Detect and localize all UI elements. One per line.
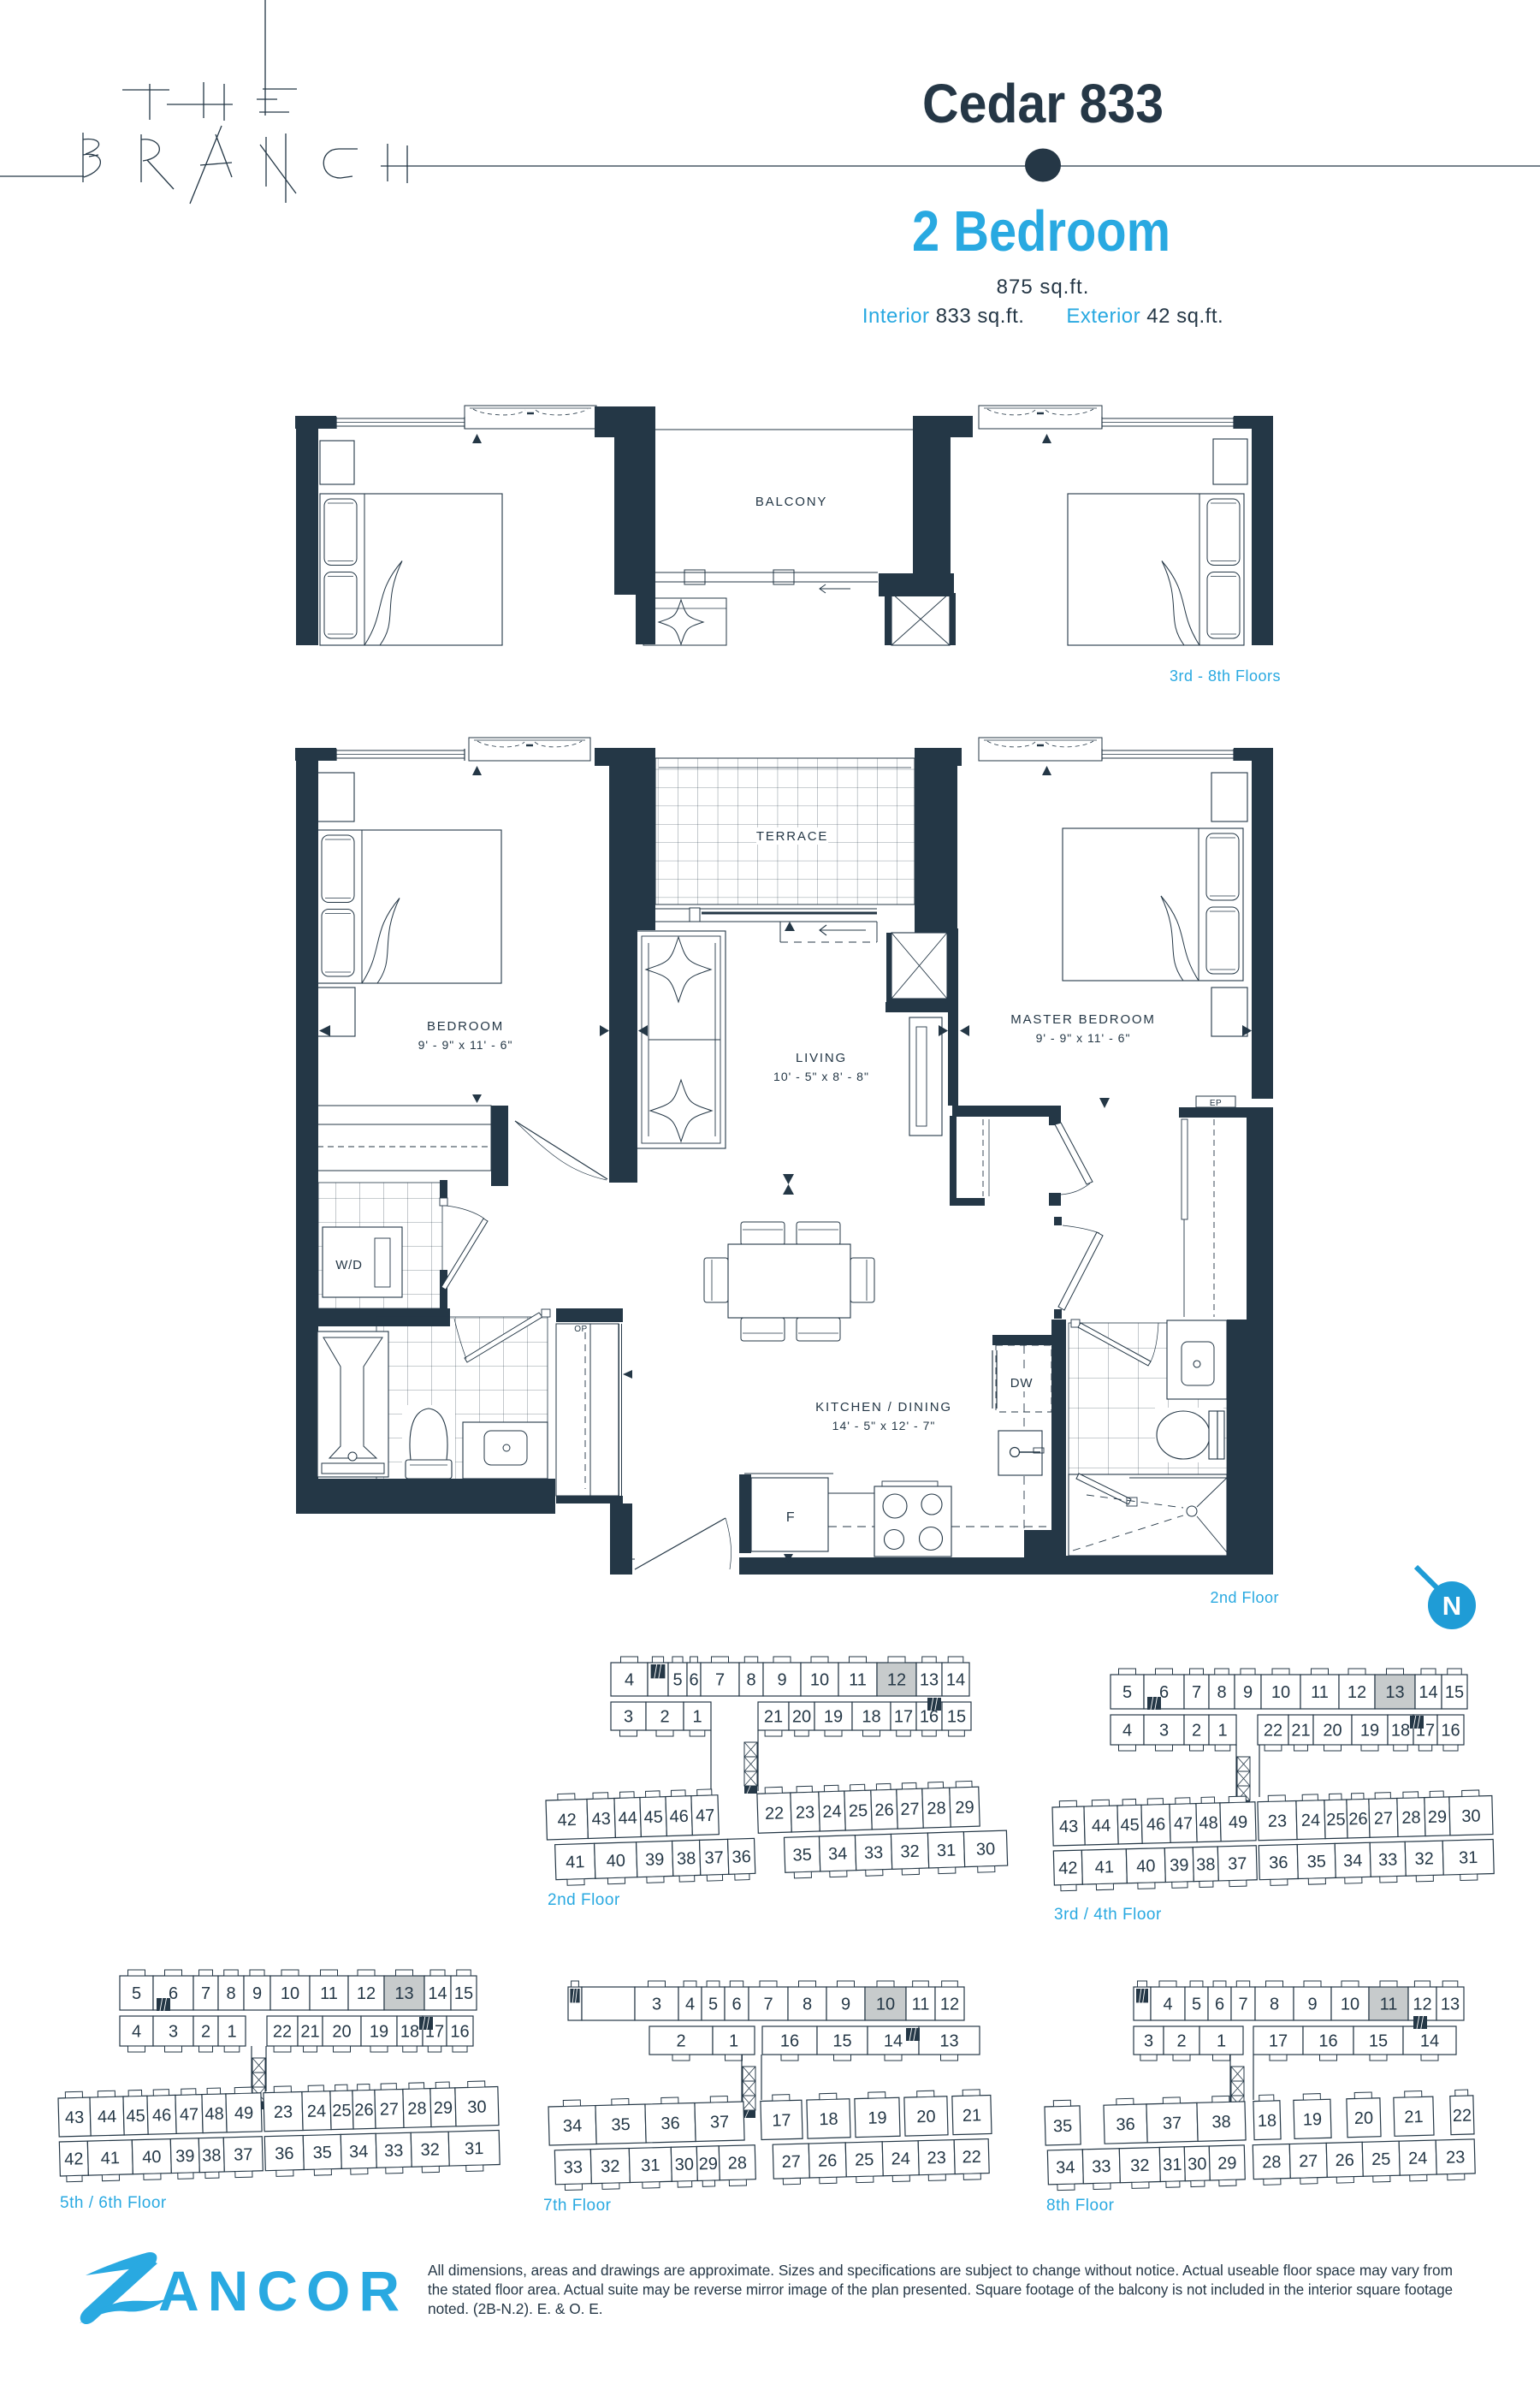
- svg-text:12: 12: [940, 1996, 959, 2014]
- svg-text:38: 38: [1196, 1855, 1216, 1875]
- svg-text:28: 28: [727, 2154, 747, 2174]
- svg-text:46: 46: [1146, 1815, 1166, 1835]
- svg-text:5: 5: [132, 1984, 141, 2003]
- svg-text:35: 35: [312, 2144, 332, 2163]
- svg-text:26: 26: [874, 1800, 894, 1820]
- svg-text:2: 2: [1176, 2032, 1186, 2051]
- svg-text:F: F: [786, 1510, 795, 1525]
- svg-text:41: 41: [566, 1853, 585, 1872]
- svg-text:23: 23: [1268, 1812, 1288, 1831]
- svg-text:21: 21: [300, 2023, 319, 2042]
- svg-text:2: 2: [201, 2023, 210, 2042]
- svg-text:3: 3: [1144, 2032, 1153, 2051]
- svg-text:OP: OP: [574, 1325, 587, 1334]
- svg-text:7: 7: [715, 1671, 725, 1690]
- svg-text:22: 22: [1453, 2106, 1472, 2126]
- svg-text:23: 23: [274, 2102, 293, 2122]
- svg-text:32: 32: [900, 1842, 920, 1862]
- svg-text:the stated floor area. Actual: the stated floor area. Actual suite may …: [428, 2281, 1453, 2298]
- svg-text:44: 44: [98, 2108, 117, 2127]
- svg-text:29: 29: [1217, 2154, 1237, 2174]
- svg-text:25: 25: [332, 2102, 352, 2121]
- svg-text:14: 14: [428, 1984, 447, 2003]
- svg-text:9: 9: [1307, 1996, 1317, 2014]
- svg-text:2nd Floor: 2nd Floor: [1210, 1589, 1279, 1606]
- svg-text:16: 16: [780, 2032, 799, 2051]
- svg-text:9: 9: [777, 1671, 786, 1690]
- svg-text:22: 22: [765, 1804, 785, 1824]
- svg-text:3rd / 4th Floor: 3rd / 4th Floor: [1054, 1906, 1162, 1924]
- svg-text:34: 34: [563, 2116, 583, 2136]
- svg-text:44: 44: [1092, 1817, 1111, 1836]
- svg-text:22: 22: [962, 2148, 981, 2168]
- svg-text:4: 4: [1122, 1722, 1132, 1741]
- svg-text:31: 31: [641, 2156, 660, 2176]
- svg-text:Interior 833 sq.ft. Exterior: Interior 833 sq.ft. Exterior 42 sq.ft.: [862, 305, 1223, 328]
- svg-text:33: 33: [1092, 2157, 1111, 2177]
- svg-text:45: 45: [126, 2107, 145, 2126]
- svg-text:23: 23: [796, 1803, 815, 1823]
- svg-text:24: 24: [822, 1802, 842, 1822]
- svg-text:23: 23: [927, 2149, 946, 2168]
- svg-text:21: 21: [764, 1708, 783, 1727]
- svg-text:42: 42: [557, 1811, 577, 1830]
- svg-text:2 Bedroom: 2 Bedroom: [912, 199, 1170, 264]
- svg-text:3: 3: [1159, 1722, 1169, 1741]
- svg-text:TERRACE: TERRACE: [756, 829, 828, 844]
- svg-text:11: 11: [1311, 1683, 1329, 1702]
- svg-text:23: 23: [1446, 2148, 1466, 2168]
- svg-text:46: 46: [669, 1807, 689, 1827]
- svg-text:9: 9: [841, 1996, 850, 2014]
- svg-text:30: 30: [674, 2156, 694, 2175]
- svg-text:4: 4: [625, 1671, 634, 1690]
- svg-text:35: 35: [792, 1846, 812, 1865]
- svg-text:40: 40: [1136, 1857, 1156, 1877]
- svg-text:11: 11: [912, 1996, 930, 2014]
- svg-text:12: 12: [1347, 1683, 1366, 1702]
- svg-text:37: 37: [1228, 1854, 1247, 1874]
- svg-text:2: 2: [660, 1708, 669, 1727]
- svg-text:13: 13: [939, 2032, 958, 2051]
- svg-text:42: 42: [1058, 1859, 1078, 1878]
- svg-text:6: 6: [1215, 1996, 1224, 2014]
- svg-text:2: 2: [676, 2032, 685, 2051]
- svg-text:13: 13: [394, 1984, 413, 2003]
- svg-text:29: 29: [698, 2155, 718, 2174]
- svg-text:7th Floor: 7th Floor: [543, 2197, 612, 2215]
- svg-text:15: 15: [832, 2032, 851, 2051]
- svg-text:21: 21: [962, 2106, 982, 2126]
- svg-text:10: 10: [1341, 1996, 1359, 2014]
- svg-text:24: 24: [1301, 1811, 1321, 1830]
- svg-text:BEDROOM: BEDROOM: [427, 1019, 504, 1034]
- svg-text:18: 18: [400, 2023, 419, 2042]
- svg-text:7: 7: [201, 1984, 210, 2003]
- svg-text:19: 19: [1360, 1722, 1379, 1741]
- svg-text:47: 47: [180, 2105, 199, 2125]
- svg-text:10: 10: [1271, 1683, 1290, 1702]
- svg-text:25: 25: [849, 1801, 868, 1821]
- svg-text:48: 48: [204, 2104, 224, 2124]
- svg-text:39: 39: [645, 1850, 665, 1870]
- svg-text:22: 22: [273, 2023, 292, 2042]
- svg-text:36: 36: [1116, 2115, 1135, 2135]
- svg-text:32: 32: [420, 2140, 440, 2160]
- svg-text:1: 1: [692, 1708, 702, 1727]
- svg-text:3: 3: [624, 1708, 633, 1727]
- svg-text:875 sq.ft.: 875 sq.ft.: [997, 276, 1090, 299]
- svg-text:30: 30: [467, 2097, 487, 2117]
- svg-text:38: 38: [1211, 2113, 1231, 2132]
- svg-text:29: 29: [1428, 1807, 1448, 1827]
- svg-text:ANCOR: ANCOR: [158, 2259, 408, 2322]
- svg-text:34: 34: [1343, 1852, 1363, 1871]
- svg-text:17: 17: [1269, 2032, 1288, 2051]
- svg-text:31: 31: [1459, 1848, 1478, 1868]
- svg-text:2: 2: [1192, 1722, 1201, 1741]
- svg-text:37: 37: [704, 1848, 724, 1868]
- svg-text:N: N: [1442, 1591, 1461, 1621]
- svg-text:10: 10: [876, 1996, 895, 2014]
- svg-text:14' - 5" x 12' - 7": 14' - 5" x 12' - 7": [832, 1419, 936, 1432]
- svg-text:37: 37: [710, 2113, 730, 2132]
- svg-text:36: 36: [660, 2114, 680, 2133]
- svg-text:8th Floor: 8th Floor: [1046, 2197, 1115, 2215]
- svg-text:21: 21: [1404, 2108, 1424, 2127]
- svg-text:18: 18: [819, 2110, 838, 2130]
- svg-text:7: 7: [1192, 1683, 1201, 1702]
- svg-text:12: 12: [357, 1984, 376, 2003]
- svg-text:14: 14: [884, 2032, 903, 2051]
- svg-text:7: 7: [763, 1996, 773, 2014]
- svg-text:27: 27: [1299, 2152, 1318, 2172]
- svg-text:26: 26: [818, 2151, 838, 2171]
- svg-text:1: 1: [227, 2023, 236, 2042]
- svg-text:8: 8: [803, 1996, 812, 2014]
- svg-text:34: 34: [1056, 2158, 1075, 2178]
- svg-text:9: 9: [252, 1984, 262, 2003]
- svg-text:30: 30: [1188, 2155, 1207, 2174]
- svg-text:33: 33: [384, 2141, 404, 2161]
- svg-text:17: 17: [772, 2111, 791, 2131]
- svg-text:15: 15: [1369, 2032, 1388, 2051]
- svg-text:45: 45: [643, 1808, 663, 1828]
- svg-text:19: 19: [1303, 2110, 1323, 2130]
- svg-text:41: 41: [100, 2149, 120, 2168]
- svg-text:All dimensions, areas and draw: All dimensions, areas and drawings are a…: [428, 2262, 1453, 2279]
- svg-text:11: 11: [320, 1984, 338, 2003]
- svg-text:31: 31: [937, 1841, 957, 1860]
- svg-text:40: 40: [606, 1852, 625, 1871]
- svg-text:10: 10: [810, 1671, 829, 1690]
- svg-text:12: 12: [887, 1671, 906, 1690]
- svg-text:5: 5: [1192, 1996, 1201, 2014]
- svg-text:MASTER BEDROOM: MASTER BEDROOM: [1010, 1012, 1155, 1027]
- svg-text:18: 18: [1258, 2111, 1277, 2131]
- svg-text:15: 15: [1445, 1683, 1464, 1702]
- svg-text:19: 19: [824, 1708, 843, 1727]
- svg-text:6: 6: [689, 1671, 698, 1690]
- svg-text:3: 3: [652, 1996, 661, 2014]
- svg-text:14: 14: [946, 1671, 965, 1690]
- svg-text:8: 8: [226, 1984, 235, 2003]
- svg-text:15: 15: [454, 1984, 473, 2003]
- svg-text:26: 26: [1348, 1810, 1368, 1830]
- svg-text:18: 18: [1391, 1722, 1410, 1741]
- svg-text:24: 24: [1408, 2149, 1428, 2168]
- svg-text:32: 32: [1414, 1849, 1434, 1869]
- svg-text:40: 40: [142, 2148, 162, 2168]
- svg-text:25: 25: [855, 2150, 874, 2170]
- svg-text:28: 28: [927, 1799, 946, 1818]
- svg-text:20: 20: [1323, 1722, 1342, 1741]
- svg-text:8: 8: [1270, 1996, 1279, 2014]
- svg-text:28: 28: [1262, 2153, 1282, 2173]
- svg-text:noted. (2B-N.2). E. & O. E.: noted. (2B-N.2). E. & O. E.: [428, 2300, 603, 2317]
- svg-text:8: 8: [746, 1671, 755, 1690]
- svg-text:3: 3: [169, 2023, 178, 2042]
- svg-text:25: 25: [1326, 1811, 1346, 1830]
- svg-text:36: 36: [275, 2144, 294, 2164]
- svg-text:11: 11: [849, 1671, 867, 1690]
- svg-text:4: 4: [132, 2023, 141, 2042]
- svg-text:31: 31: [1163, 2156, 1182, 2175]
- svg-text:28: 28: [1401, 1808, 1421, 1828]
- svg-text:49: 49: [1229, 1813, 1248, 1833]
- svg-text:33: 33: [1378, 1850, 1398, 1870]
- svg-text:35: 35: [1053, 2117, 1073, 2137]
- svg-text:36: 36: [731, 1847, 751, 1867]
- svg-text:31: 31: [465, 2139, 484, 2159]
- svg-text:45: 45: [1120, 1816, 1140, 1836]
- svg-text:43: 43: [65, 2108, 85, 2128]
- svg-text:27: 27: [1374, 1809, 1394, 1829]
- svg-text:34: 34: [828, 1844, 848, 1864]
- svg-text:16: 16: [1441, 1722, 1460, 1741]
- svg-text:20: 20: [1354, 2108, 1374, 2128]
- svg-text:W/D: W/D: [335, 1258, 363, 1272]
- svg-text:LIVING: LIVING: [796, 1051, 847, 1065]
- svg-text:42: 42: [64, 2150, 84, 2169]
- svg-text:BALCONY: BALCONY: [755, 495, 827, 509]
- svg-text:DW: DW: [1010, 1376, 1034, 1391]
- svg-text:5: 5: [672, 1671, 682, 1690]
- svg-text:29: 29: [434, 2098, 453, 2118]
- svg-text:28: 28: [407, 2099, 427, 2119]
- svg-text:EP: EP: [1210, 1099, 1222, 1108]
- svg-text:10: 10: [281, 1984, 299, 2003]
- svg-text:22: 22: [1264, 1722, 1282, 1741]
- svg-text:38: 38: [202, 2146, 222, 2166]
- svg-text:21: 21: [1291, 1722, 1310, 1741]
- svg-text:33: 33: [864, 1843, 884, 1863]
- svg-text:25: 25: [1371, 2150, 1391, 2169]
- svg-text:9: 9: [1243, 1683, 1253, 1702]
- svg-text:17: 17: [894, 1708, 913, 1727]
- svg-text:39: 39: [175, 2147, 195, 2167]
- svg-text:30: 30: [976, 1840, 996, 1859]
- svg-text:38: 38: [677, 1849, 696, 1869]
- svg-text:14: 14: [1419, 1683, 1437, 1702]
- svg-text:20: 20: [332, 2023, 351, 2042]
- svg-text:48: 48: [1199, 1813, 1218, 1833]
- svg-text:27: 27: [900, 1800, 920, 1819]
- svg-text:13: 13: [920, 1671, 939, 1690]
- svg-text:18: 18: [862, 1708, 880, 1727]
- svg-text:14: 14: [1420, 2032, 1439, 2051]
- svg-text:9' - 9" x 11' - 6": 9' - 9" x 11' - 6": [1036, 1031, 1131, 1045]
- svg-text:30: 30: [1461, 1806, 1481, 1826]
- svg-text:26: 26: [354, 2101, 374, 2120]
- svg-text:24: 24: [891, 2150, 910, 2169]
- svg-text:20: 20: [792, 1708, 811, 1727]
- svg-text:39: 39: [1170, 1856, 1189, 1876]
- svg-text:2nd Floor: 2nd Floor: [548, 1891, 620, 1909]
- svg-text:46: 46: [152, 2106, 172, 2126]
- svg-text:29: 29: [955, 1798, 974, 1818]
- svg-text:19: 19: [868, 2108, 887, 2128]
- svg-text:43: 43: [591, 1810, 611, 1830]
- svg-text:49: 49: [234, 2104, 254, 2124]
- svg-text:12: 12: [1413, 1996, 1431, 2014]
- svg-text:32: 32: [601, 2157, 620, 2177]
- svg-text:43: 43: [1059, 1818, 1079, 1837]
- svg-text:15: 15: [947, 1708, 966, 1727]
- svg-text:47: 47: [1174, 1814, 1193, 1834]
- svg-text:32: 32: [1130, 2156, 1150, 2176]
- svg-text:16: 16: [1318, 2032, 1337, 2051]
- svg-text:24: 24: [307, 2102, 327, 2121]
- svg-text:13: 13: [1441, 1996, 1460, 2014]
- svg-text:16: 16: [450, 2023, 469, 2042]
- svg-text:1: 1: [729, 2032, 738, 2051]
- svg-text:9' - 9" x 11' - 6": 9' - 9" x 11' - 6": [418, 1038, 513, 1052]
- svg-text:35: 35: [1306, 1853, 1326, 1872]
- svg-text:7: 7: [1238, 1996, 1247, 2014]
- svg-text:4: 4: [1163, 1996, 1172, 2014]
- svg-text:36: 36: [1269, 1853, 1288, 1873]
- svg-text:34: 34: [349, 2143, 369, 2162]
- svg-text:19: 19: [370, 2023, 388, 2042]
- svg-text:20: 20: [916, 2108, 936, 2127]
- svg-text:27: 27: [781, 2152, 801, 2172]
- svg-text:44: 44: [618, 1809, 637, 1829]
- svg-text:Cedar 833: Cedar 833: [922, 73, 1164, 134]
- svg-text:8: 8: [1217, 1683, 1226, 1702]
- svg-text:5: 5: [1122, 1683, 1132, 1702]
- svg-text:1: 1: [1217, 2032, 1226, 2051]
- svg-text:4: 4: [685, 1996, 695, 2014]
- svg-text:6: 6: [731, 1996, 741, 2014]
- svg-text:5th / 6th Floor: 5th / 6th Floor: [60, 2194, 167, 2212]
- svg-text:KITCHEN / DINING: KITCHEN / DINING: [815, 1400, 952, 1414]
- svg-text:10' - 5" x 8' - 8": 10' - 5" x 8' - 8": [773, 1070, 869, 1083]
- svg-text:37: 37: [234, 2145, 253, 2165]
- svg-text:41: 41: [1094, 1858, 1114, 1877]
- svg-text:3rd - 8th Floors: 3rd - 8th Floors: [1170, 667, 1281, 685]
- svg-text:35: 35: [611, 2115, 631, 2135]
- svg-text:33: 33: [563, 2158, 583, 2178]
- svg-text:27: 27: [380, 2100, 400, 2120]
- svg-text:47: 47: [696, 1806, 715, 1826]
- svg-text:26: 26: [1335, 2151, 1354, 2171]
- svg-text:11: 11: [1380, 1996, 1398, 2014]
- svg-text:5: 5: [708, 1996, 718, 2014]
- svg-text:13: 13: [1385, 1683, 1404, 1702]
- svg-text:1: 1: [1217, 1722, 1227, 1741]
- svg-text:37: 37: [1163, 2114, 1182, 2133]
